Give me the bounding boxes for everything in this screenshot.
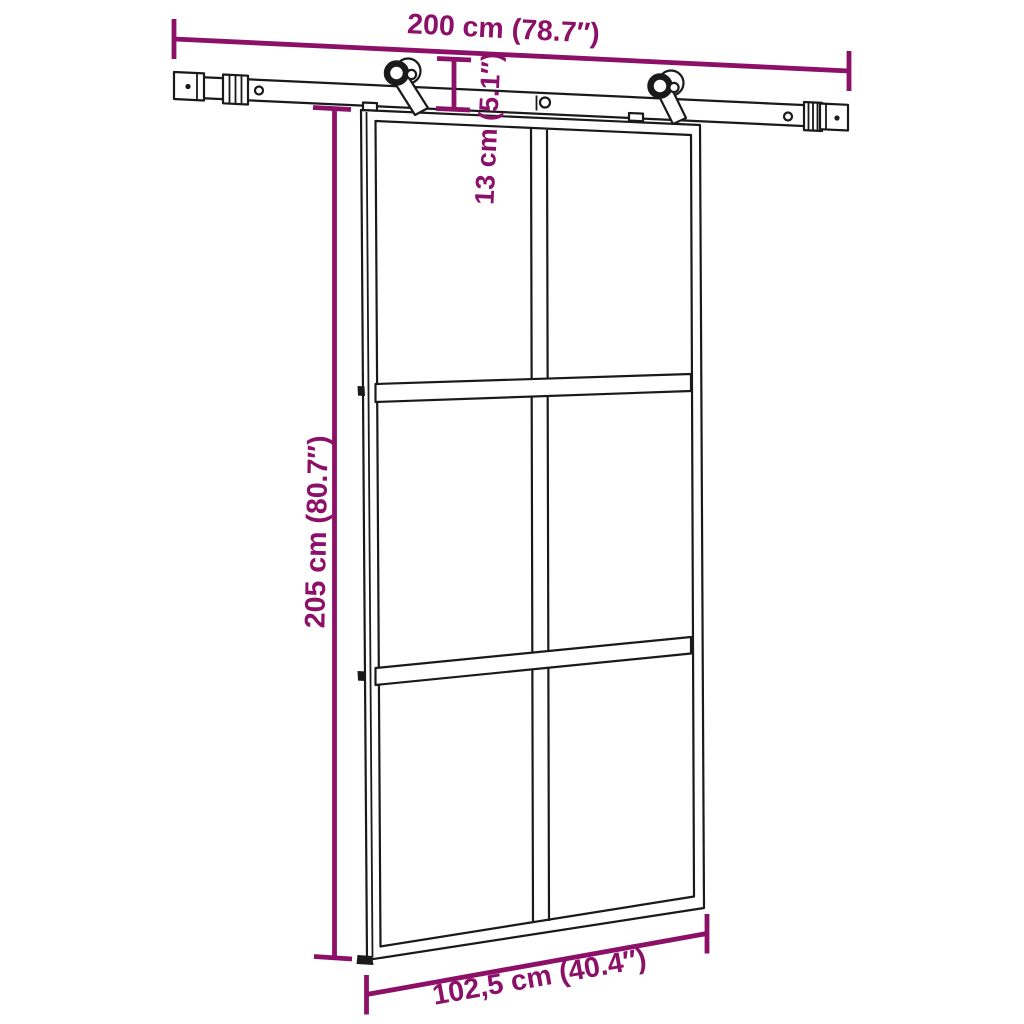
rail-mount-hole-left <box>255 87 263 95</box>
floor-guide-foot <box>357 955 374 965</box>
rail-mount-hole-mid <box>540 98 550 108</box>
door-height-tick-top <box>313 108 351 110</box>
rail-width-label: 200 cm (78.7″) <box>406 8 600 50</box>
hanger-drop-tick-bottom <box>436 109 470 111</box>
door-width-label: 102,5 cm (40.4″) <box>430 943 649 1012</box>
anti-jump-tab-left <box>363 103 377 111</box>
rail-mount-hole-right <box>784 113 792 121</box>
dimension-rail-width: 200 cm (78.7″) <box>174 8 849 91</box>
glass-door <box>357 103 705 966</box>
glass-clip-lower <box>358 671 366 681</box>
glass-clip-upper <box>358 386 366 396</box>
door-height-label: 205 cm (80.7″) <box>299 435 334 628</box>
rail-end-cap-right <box>820 104 848 131</box>
roller-wheel-left-icon <box>387 64 406 83</box>
door-height-tick-bottom <box>314 957 352 960</box>
roller-wheel-right-icon <box>651 77 670 96</box>
rail-end-screw-left <box>185 84 190 89</box>
dimension-door-height: 205 cm (80.7″) <box>299 108 352 960</box>
rail-end-screw-right <box>834 115 839 120</box>
hanger-right-bolt-hole <box>669 83 678 92</box>
diagram-canvas: 200 cm (78.7″) 13 cm (5.1″) 205 cm (80.7… <box>0 0 1024 1024</box>
anti-jump-tab-right <box>629 113 643 121</box>
hanger-left-bolt-hole <box>407 70 416 79</box>
hanger-drop-tick-top <box>437 59 471 61</box>
